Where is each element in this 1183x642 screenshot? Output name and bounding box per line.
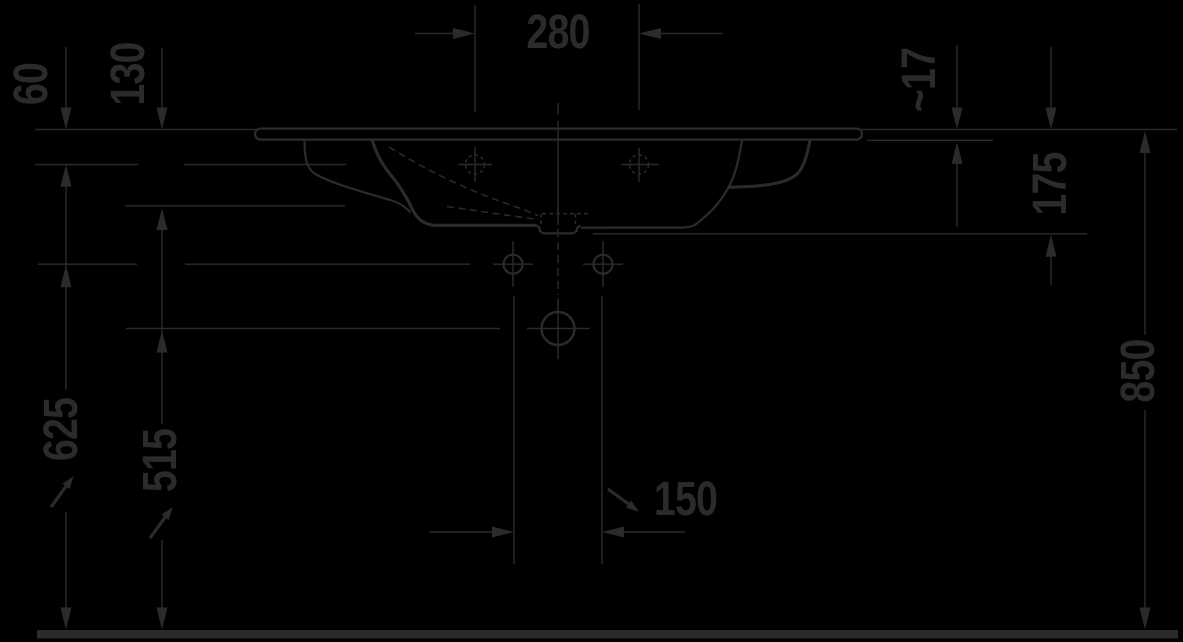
dimension-value: 175 bbox=[1027, 152, 1075, 215]
washbasin-technical-drawing: 280 60 130 ~17 175 850 625 515 150 bbox=[0, 0, 1183, 642]
slope-arrow-icon bbox=[606, 487, 640, 513]
dimension-value: 515 bbox=[137, 429, 185, 492]
dimension-label-850: 850 bbox=[1115, 332, 1163, 409]
drawing-canvas bbox=[0, 0, 1183, 642]
back-wall-profile bbox=[581, 140, 742, 228]
dimension-label-150: 150 bbox=[606, 476, 724, 524]
dimension-value: 280 bbox=[526, 9, 589, 57]
floor-line bbox=[37, 630, 1178, 639]
dimension-value: 60 bbox=[8, 63, 56, 105]
dimension-label-17: ~17 bbox=[896, 41, 944, 119]
dimension-label-280: 280 bbox=[519, 9, 596, 57]
dimension-label-130: 130 bbox=[105, 35, 153, 112]
extension-lines bbox=[35, 4, 1177, 329]
dimension-label-515: 515 bbox=[137, 422, 185, 540]
slope-arrow-icon bbox=[49, 475, 75, 509]
dimension-value: 130 bbox=[105, 42, 153, 105]
dimension-value: ~17 bbox=[896, 48, 944, 112]
dimension-value: 850 bbox=[1115, 339, 1163, 402]
dimension-label-60: 60 bbox=[8, 58, 56, 109]
dimension-value: 150 bbox=[654, 476, 717, 524]
hidden-lines bbox=[389, 147, 589, 226]
dimension-label-175: 175 bbox=[1027, 145, 1075, 222]
dimension-label-625: 625 bbox=[38, 391, 86, 509]
slope-arrow-icon bbox=[148, 506, 174, 540]
dimension-value: 625 bbox=[38, 398, 86, 461]
